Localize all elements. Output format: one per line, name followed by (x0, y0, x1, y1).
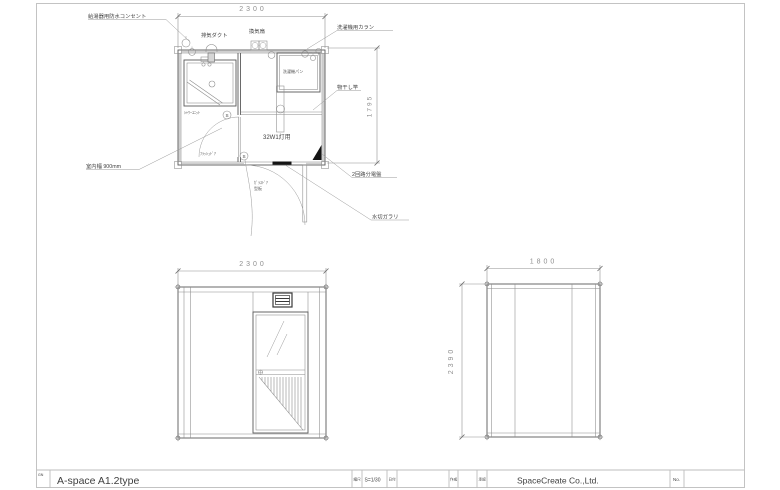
switch-symbol-1: S (225, 113, 228, 118)
shower-unit: ｼｬﾜｰﾕﾆｯﾄ (184, 57, 236, 115)
plan-annotations: 給湯器用防水コンセント 排気ダクト 換気扇 洗濯機用カラン 物干し竿 2回路分電… (86, 12, 409, 221)
glass-type-label: 型板 (254, 185, 262, 191)
plan-width-dim: 2300 (239, 6, 267, 13)
shower-drain-icon (209, 81, 215, 87)
glass-reflection-lines (267, 321, 287, 357)
entrance-door: ｶﾞﾗｽﾄﾞｱ 型板 (245, 165, 307, 225)
entrance-door-swing-arc (245, 165, 305, 225)
light-fixture: 32W1灯用 (263, 86, 291, 141)
front-dimension-width: 2300 (176, 261, 329, 285)
front-elevation: 2300 (175, 261, 329, 441)
drip-louver-label: 水切ガラリ (372, 213, 399, 221)
glass-door-label: ｶﾞﾗｽﾄﾞｱ (254, 180, 268, 185)
distribution-board-symbol (313, 145, 322, 160)
switch-symbols: S S (223, 111, 252, 236)
drawing-page: ｼｬﾜｰﾕﾆｯﾄ ﾌﾗｯｼｭﾄﾞｱ S S 洗濯機パン 32W1灯用 (0, 0, 780, 490)
approved-label: 承認 (479, 477, 487, 482)
side-dimension-width: 1800 (485, 259, 603, 282)
date-label: 日付 (389, 477, 397, 482)
title-block: GN A-space A1.2type 縮尺 S=1/30 日付 作成 承認 S… (38, 470, 684, 488)
side-width-dim: 1800 (530, 259, 558, 266)
drip-louver-bar (273, 162, 292, 165)
plan-depth-dim: 1795 (367, 95, 374, 117)
sheet-frame (37, 4, 745, 488)
drawn-label: 作成 (450, 477, 458, 482)
shower-unit-label: ｼｬﾜｰﾕﾆｯﾄ (184, 110, 200, 115)
plan-dimension-width: 2300 (176, 6, 328, 48)
company-name: SpaceCreate Co.,Ltd. (517, 476, 599, 486)
cad-sheet: ｼｬﾜｰﾕﾆｯﾄ ﾌﾗｯｼｭﾄﾞｱ S S 洗濯機パン 32W1灯用 (0, 0, 780, 490)
elevation-door (253, 312, 308, 433)
side-elevation: 1800 2390 (448, 259, 603, 441)
vent-fan-label: 換気扇 (249, 27, 265, 35)
switch-symbol-2: S (242, 154, 245, 159)
plan-walls (175, 47, 329, 169)
light-fixture-label: 32W1灯用 (263, 133, 291, 141)
water-heater-outlet-label: 給湯器用防水コンセント (88, 12, 146, 20)
corner-code: GN (38, 473, 44, 477)
scale-label: 縮尺 (354, 477, 362, 482)
drying-pole-label: 物干し竿 (337, 83, 359, 91)
washer-faucet-label: 洗濯機用カラン (337, 23, 374, 31)
floor-plan: ｼｬﾜｰﾕﾆｯﾄ ﾌﾗｯｼｭﾄﾞｱ S S 洗濯機パン 32W1灯用 (86, 6, 409, 236)
drip-louver-hatch (262, 377, 301, 428)
interior-width-label: 室内幅 900mm (86, 162, 122, 170)
distribution-board-label: 2回路分電盤 (352, 170, 382, 178)
flush-door-label: ﾌﾗｯｼｭﾄﾞｱ (200, 151, 216, 156)
front-width-dim: 2300 (239, 261, 267, 268)
washer-pan-label: 洗濯機パン (283, 68, 303, 74)
exhaust-duct-label: 排気ダクト (201, 31, 228, 39)
door-handle-icon (258, 370, 263, 375)
plan-dimension-depth: 1795 (327, 46, 380, 166)
side-height-dim: 2390 (448, 347, 455, 375)
scale-value: S=1/30 (365, 478, 381, 484)
side-dimension-height: 2390 (448, 282, 484, 440)
drawing-title: A-space A1.2type (57, 475, 139, 487)
flush-door: ﾌﾗｯｼｭﾄﾞｱ (199, 117, 240, 157)
vent-grille-icon (273, 293, 292, 307)
number-label: No. (673, 477, 680, 482)
